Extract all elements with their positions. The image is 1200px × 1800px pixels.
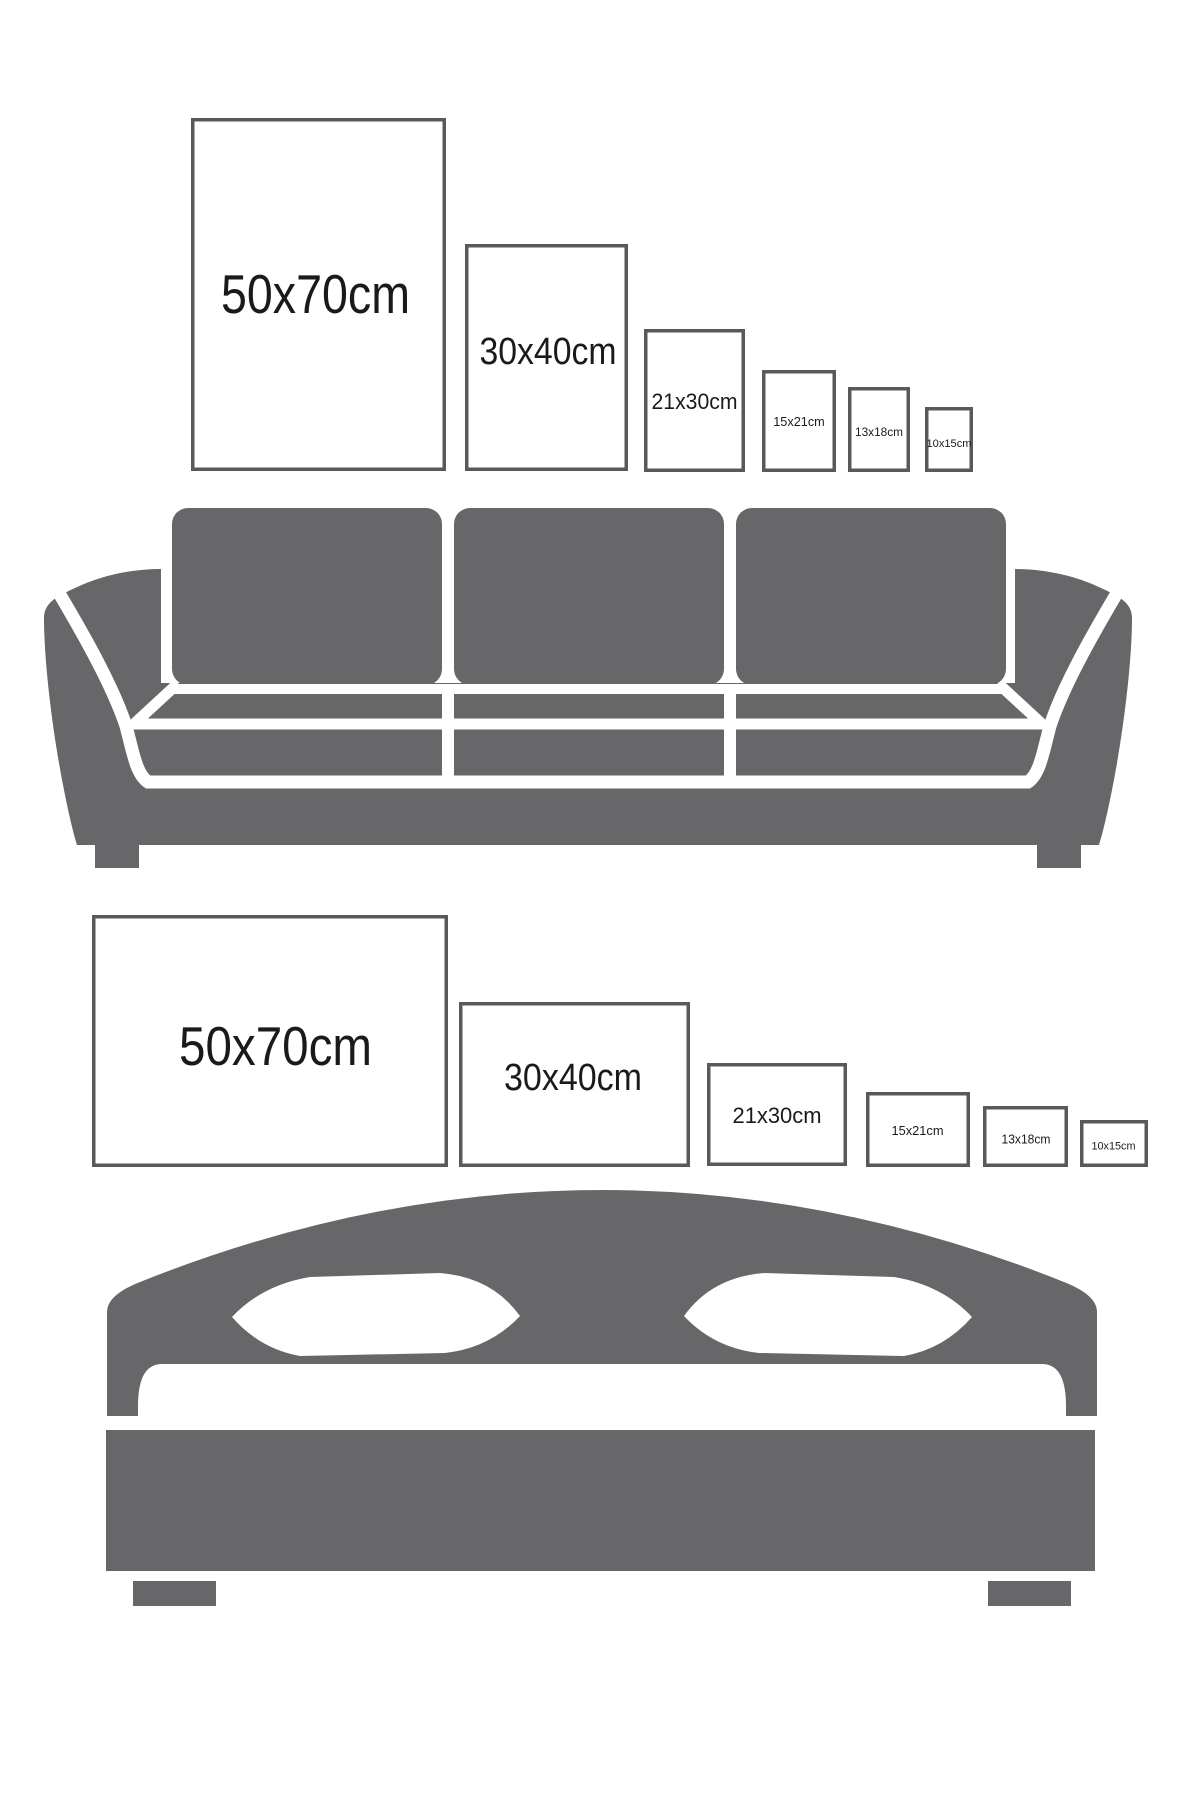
svg-text:10x15cm: 10x15cm [1092,1141,1136,1153]
svg-text:21x30cm: 21x30cm [733,1103,822,1128]
svg-text:30x40cm: 30x40cm [504,1057,642,1099]
svg-text:13x18cm: 13x18cm [1002,1133,1051,1147]
svg-text:50x70cm: 50x70cm [221,263,410,325]
svg-text:15x21cm: 15x21cm [773,414,825,429]
svg-text:13x18cm: 13x18cm [855,425,903,439]
svg-text:10x15cm: 10x15cm [927,438,972,450]
svg-text:50x70cm: 50x70cm [179,1015,372,1077]
svg-text:15x21cm: 15x21cm [892,1123,944,1138]
svg-text:21x30cm: 21x30cm [652,389,738,414]
svg-text:30x40cm: 30x40cm [480,331,617,373]
